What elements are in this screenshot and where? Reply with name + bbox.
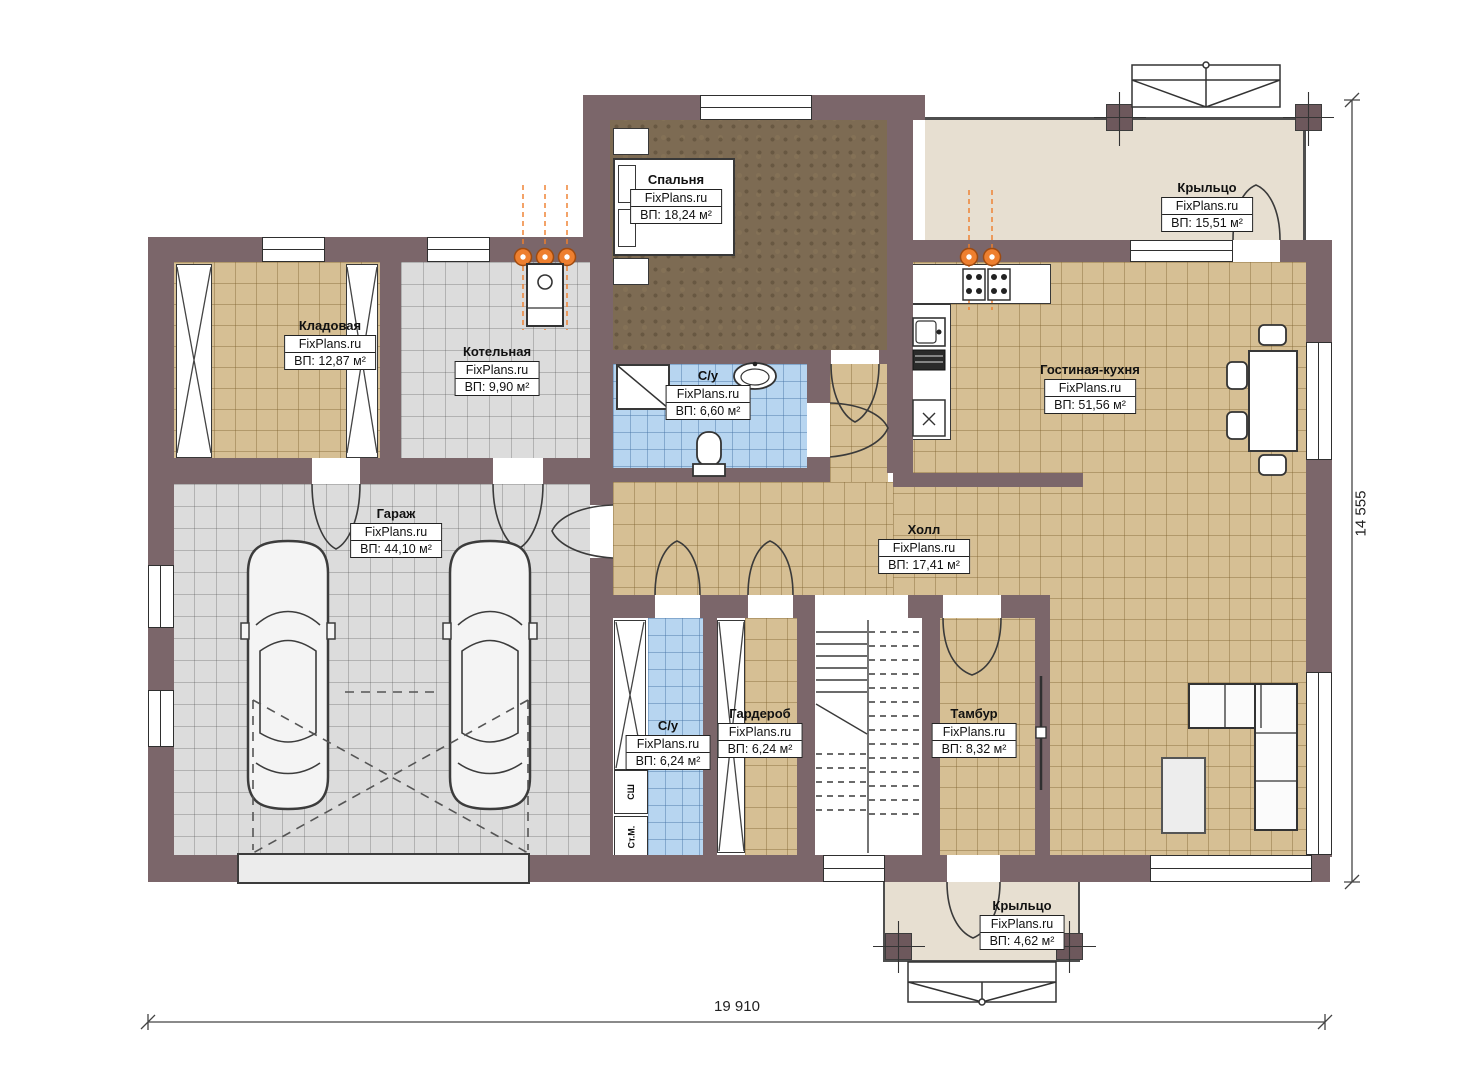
watermark: FixPlans.ru (285, 336, 375, 352)
room-label-hall: Холл FixPlans.ruВП: 17,41 м² (878, 522, 970, 574)
wall-storage-boiler (380, 262, 401, 458)
nightstand-2 (613, 258, 649, 285)
dryer-cabinet: СШ (614, 770, 648, 814)
room-name: Гараж (350, 506, 442, 521)
dimension-height: 14 555 (1353, 479, 1370, 549)
window-panoramic-right (1306, 672, 1332, 855)
watermark: FixPlans.ru (631, 190, 721, 206)
kitchen-counter-top (911, 264, 1051, 304)
door-gap-storage (312, 458, 360, 484)
window-panoramic-bottom (1150, 855, 1312, 882)
watermark: FixPlans.ru (627, 736, 710, 752)
wall-top-left-block (148, 237, 612, 262)
room-name: Холл (878, 522, 970, 537)
wall-bedroom-left (583, 95, 610, 262)
room-name: С/у (666, 368, 751, 383)
porch-bottom-steps (908, 962, 1056, 1005)
window-boiler (427, 237, 490, 262)
porch-top-column-right (1295, 104, 1322, 131)
window-dining (1306, 342, 1332, 460)
room-area: ВП: 4,62 м² (981, 932, 1064, 949)
window-bedroom (700, 95, 812, 120)
room-area: ВП: 6,60 м² (667, 402, 750, 419)
room-label-storage: Кладовая FixPlans.ruВП: 12,87 м² (284, 318, 376, 370)
door-gap-bedroom (831, 350, 879, 364)
room-area: ВП: 12,87 м² (285, 352, 375, 369)
room-label-bathroom-main: С/у FixPlans.ruВП: 6,60 м² (666, 368, 751, 420)
window-storage (262, 237, 325, 262)
watermark: FixPlans.ru (667, 386, 750, 402)
room-label-bedroom: Спальня FixPlans.ruВП: 18,24 м² (630, 172, 722, 224)
room-label-bathroom-small: С/у FixPlans.ruВП: 6,24 м² (626, 718, 711, 770)
room-area: ВП: 9,90 м² (456, 378, 539, 395)
garage-door (237, 853, 530, 884)
room-label-garage: Гараж FixPlans.ruВП: 44,10 м² (350, 506, 442, 558)
room-name: Крыльцо (980, 898, 1065, 913)
wall-bedroom-kitchen (887, 120, 913, 473)
porch-top-column-left (1106, 104, 1133, 131)
dining-table (1248, 350, 1298, 452)
door-gap-hall-tambour (943, 595, 1001, 618)
watermark: FixPlans.ru (351, 524, 441, 540)
kitchen-counter-left (911, 304, 951, 440)
shower (616, 364, 670, 410)
room-label-living-kitchen: Гостиная-кухня FixPlans.ruВП: 51,56 м² (1040, 362, 1140, 414)
hall-floor-passage (830, 362, 888, 482)
door-gap-living-porch (1233, 240, 1280, 262)
watermark: FixPlans.ru (719, 724, 802, 740)
room-name: Спальня (630, 172, 722, 187)
room-area: ВП: 8,32 м² (933, 740, 1016, 757)
watermark: FixPlans.ru (879, 540, 969, 556)
wall-kitchen-halfwall (893, 473, 1083, 487)
room-name: Крыльцо (1161, 180, 1253, 195)
room-label-porch-bottom: Крыльцо FixPlans.ruВП: 4,62 м² (980, 898, 1065, 950)
room-label-porch-top: Крыльцо FixPlans.ruВП: 15,51 м² (1161, 180, 1253, 232)
watermark: FixPlans.ru (1162, 198, 1252, 214)
room-area: ВП: 18,24 м² (631, 206, 721, 223)
room-area: ВП: 6,24 м² (719, 740, 802, 757)
room-area: ВП: 15,51 м² (1162, 214, 1252, 231)
room-label-wardrobe: Гардероб FixPlans.ruВП: 6,24 м² (718, 706, 803, 758)
porch-bottom-column-left (885, 933, 912, 960)
window-garage-2 (148, 690, 174, 747)
room-area: ВП: 17,41 м² (879, 556, 969, 573)
shelf-storage-left (176, 264, 212, 458)
room-name: Гостиная-кухня (1040, 362, 1140, 377)
door-gap-garage-hall (590, 505, 613, 558)
room-label-tambour: Тамбур FixPlans.ruВП: 8,32 м² (932, 706, 1017, 758)
door-gap-bathroom-main (807, 403, 830, 457)
watermark: FixPlans.ru (933, 724, 1016, 740)
washing-machine: Ст.М. (614, 816, 648, 857)
door-gap-boiler (493, 458, 543, 484)
room-name: Кладовая (284, 318, 376, 333)
door-gap-wardrobe (748, 595, 793, 618)
wall-tambour-living (1035, 618, 1050, 855)
room-name: Тамбур (932, 706, 1017, 721)
washing-machine-label: Ст.М. (626, 825, 636, 848)
stair-opening (815, 595, 908, 618)
coffee-table (1161, 757, 1206, 834)
hall-floor (613, 482, 893, 595)
room-area: ВП: 6,24 м² (627, 752, 710, 769)
window-under-stairs (823, 855, 885, 882)
room-area: ВП: 44,10 м² (351, 540, 441, 557)
wall-bathroom-main-bottom (610, 468, 830, 482)
room-name: Котельная (455, 344, 540, 359)
door-gap-bathroom-small (655, 595, 700, 618)
nightstand-1 (613, 128, 649, 155)
dimension-width: 19 910 (690, 998, 784, 1015)
room-name: С/у (626, 718, 711, 733)
window-kitchen-top (1130, 240, 1233, 262)
watermark: FixPlans.ru (981, 916, 1064, 932)
porch-top-steps (1132, 62, 1280, 107)
window-garage-1 (148, 565, 174, 628)
stairwell-floor (815, 618, 922, 855)
door-gap-tambour-porch (947, 855, 1000, 882)
floor-plan: СШ Ст.М. (0, 0, 1473, 1080)
watermark: FixPlans.ru (456, 362, 539, 378)
room-area: ВП: 51,56 м² (1045, 396, 1135, 413)
watermark: FixPlans.ru (1045, 380, 1135, 396)
room-name: Гардероб (718, 706, 803, 721)
wall-exterior-left (148, 237, 174, 882)
room-label-boiler: Котельная FixPlans.ruВП: 9,90 м² (455, 344, 540, 396)
dryer-cabinet-label: СШ (626, 784, 636, 800)
